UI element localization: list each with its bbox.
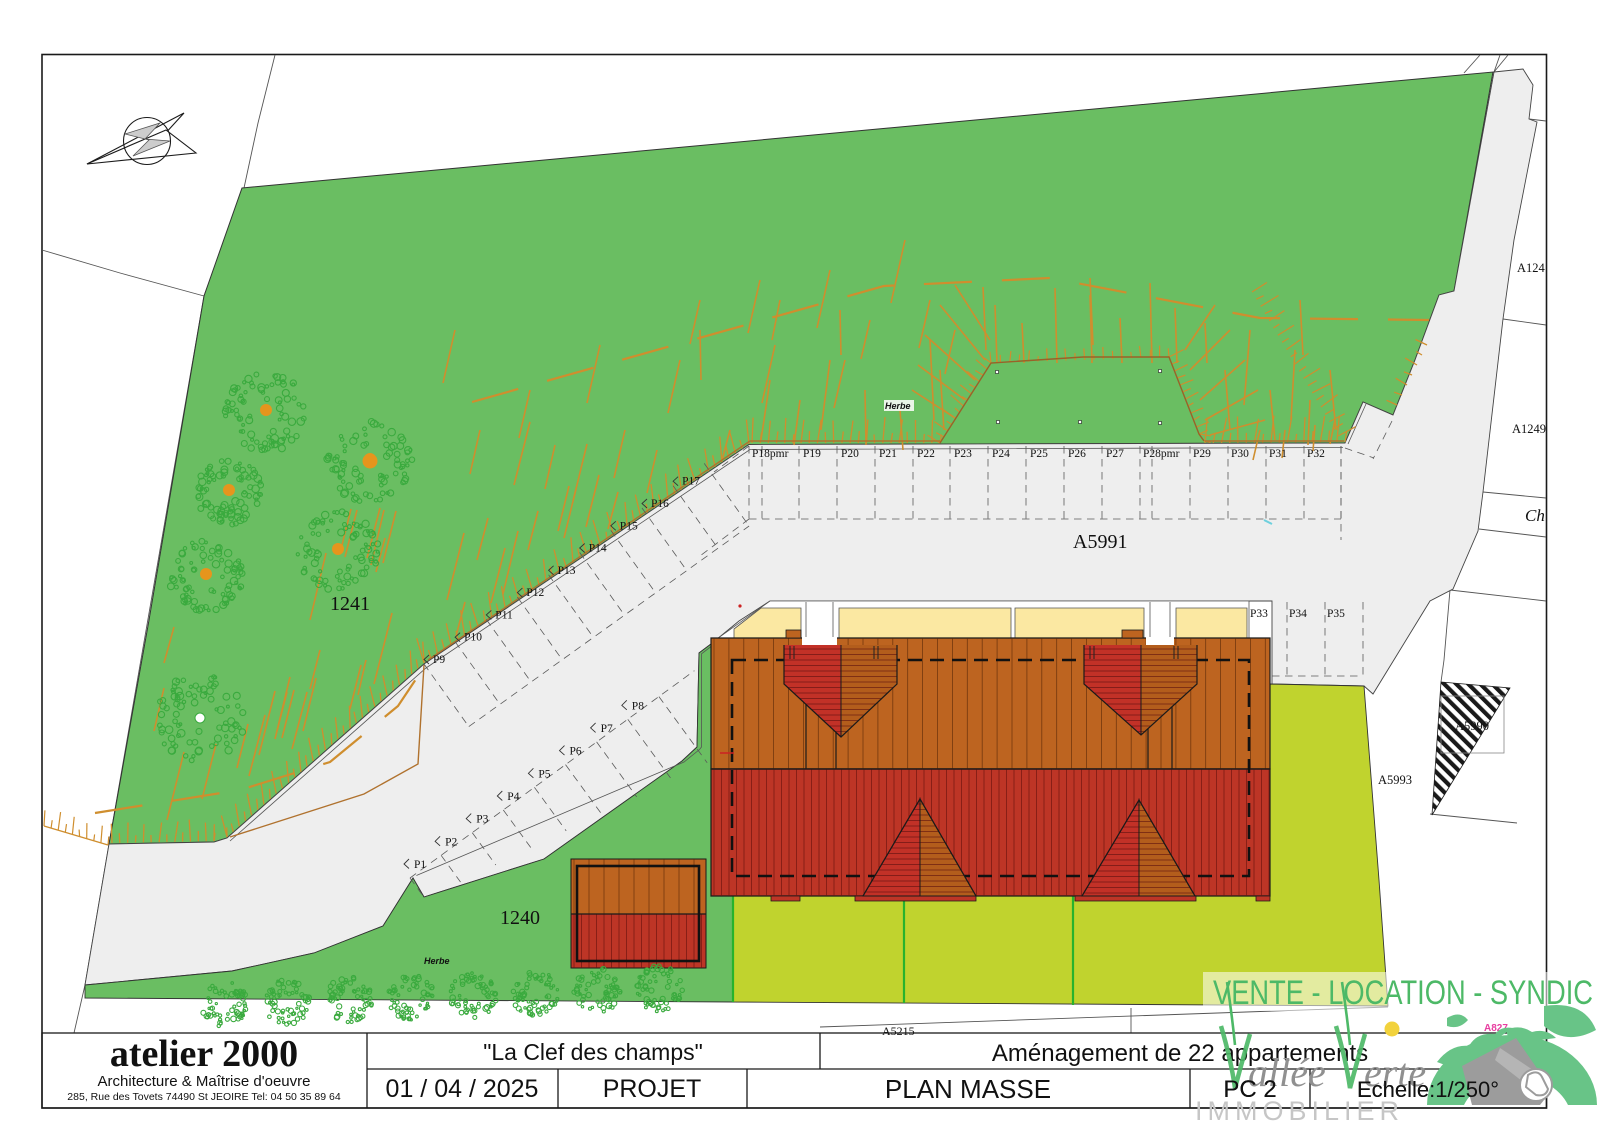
svg-text:P31: P31 (1269, 448, 1287, 460)
svg-text:P24: P24 (992, 448, 1010, 460)
svg-text:285, Rue des Tovets 74490 St J: 285, Rue des Tovets 74490 St JEOIRE Tel:… (67, 1091, 341, 1103)
svg-text:P33: P33 (1250, 608, 1268, 620)
svg-text:P23: P23 (954, 448, 972, 460)
svg-text:P32: P32 (1307, 448, 1325, 460)
svg-text:PLAN MASSE: PLAN MASSE (885, 1074, 1051, 1104)
svg-text:1240: 1240 (500, 907, 540, 929)
svg-text:Herbe: Herbe (424, 956, 450, 966)
svg-text:A1249: A1249 (1512, 422, 1546, 436)
svg-text:P15: P15 (620, 520, 638, 532)
svg-text:P19: P19 (803, 448, 821, 460)
svg-text:01 / 04 / 2025: 01 / 04 / 2025 (386, 1075, 539, 1103)
svg-text:P22: P22 (917, 448, 935, 460)
svg-text:P2: P2 (445, 836, 457, 848)
svg-text:P13: P13 (558, 565, 576, 577)
svg-text:P35: P35 (1327, 608, 1345, 620)
svg-text:P11: P11 (495, 609, 513, 621)
svg-text:A5215: A5215 (882, 1024, 915, 1038)
svg-text:P29: P29 (1193, 448, 1211, 460)
svg-text:P17: P17 (682, 476, 700, 488)
svg-text:P18pmr: P18pmr (752, 448, 789, 460)
svg-text:P10: P10 (464, 632, 482, 644)
svg-text:P12: P12 (526, 587, 544, 599)
svg-text:P6: P6 (570, 746, 582, 758)
svg-text:P4: P4 (507, 791, 519, 803)
svg-text:P20: P20 (841, 448, 859, 460)
svg-text:1241: 1241 (330, 593, 370, 615)
svg-text:P5: P5 (538, 768, 550, 780)
svg-text:P34: P34 (1289, 608, 1307, 620)
svg-text:P9: P9 (433, 654, 445, 666)
svg-text:P21: P21 (879, 448, 897, 460)
svg-text:P26: P26 (1068, 448, 1086, 460)
svg-text:P8: P8 (632, 700, 644, 712)
svg-text:P14: P14 (589, 543, 607, 555)
svg-text:Architecture & Maîtrise d'oeuv: Architecture & Maîtrise d'oeuvre (98, 1073, 311, 1090)
svg-text:"La Clef des champs": "La Clef des champs" (483, 1039, 703, 1065)
svg-text:VENTE - LOCATION - SYNDIC: VENTE - LOCATION - SYNDIC (1213, 974, 1593, 1012)
svg-text:P30: P30 (1231, 448, 1249, 460)
svg-text:A5993: A5993 (1378, 773, 1412, 787)
svg-text:P27: P27 (1106, 448, 1124, 460)
svg-text:Ch: Ch (1525, 506, 1545, 525)
svg-text:P1: P1 (414, 859, 426, 871)
svg-text:Herbe: Herbe (885, 401, 911, 411)
svg-text:A5991: A5991 (1073, 531, 1127, 553)
svg-text:Echelle:1/250°: Echelle:1/250° (1357, 1077, 1499, 1102)
svg-text:P3: P3 (476, 814, 488, 826)
svg-text:PC 2: PC 2 (1223, 1076, 1276, 1103)
svg-text:A5990: A5990 (1455, 719, 1489, 733)
svg-text:PROJET: PROJET (603, 1075, 702, 1103)
svg-text:P25: P25 (1030, 448, 1048, 460)
svg-text:P28pmr: P28pmr (1143, 448, 1180, 460)
svg-text:A124: A124 (1517, 261, 1546, 275)
svg-text:P16: P16 (651, 498, 669, 510)
svg-text:atelier 2000: atelier 2000 (110, 1033, 298, 1075)
svg-text:P7: P7 (601, 723, 613, 735)
